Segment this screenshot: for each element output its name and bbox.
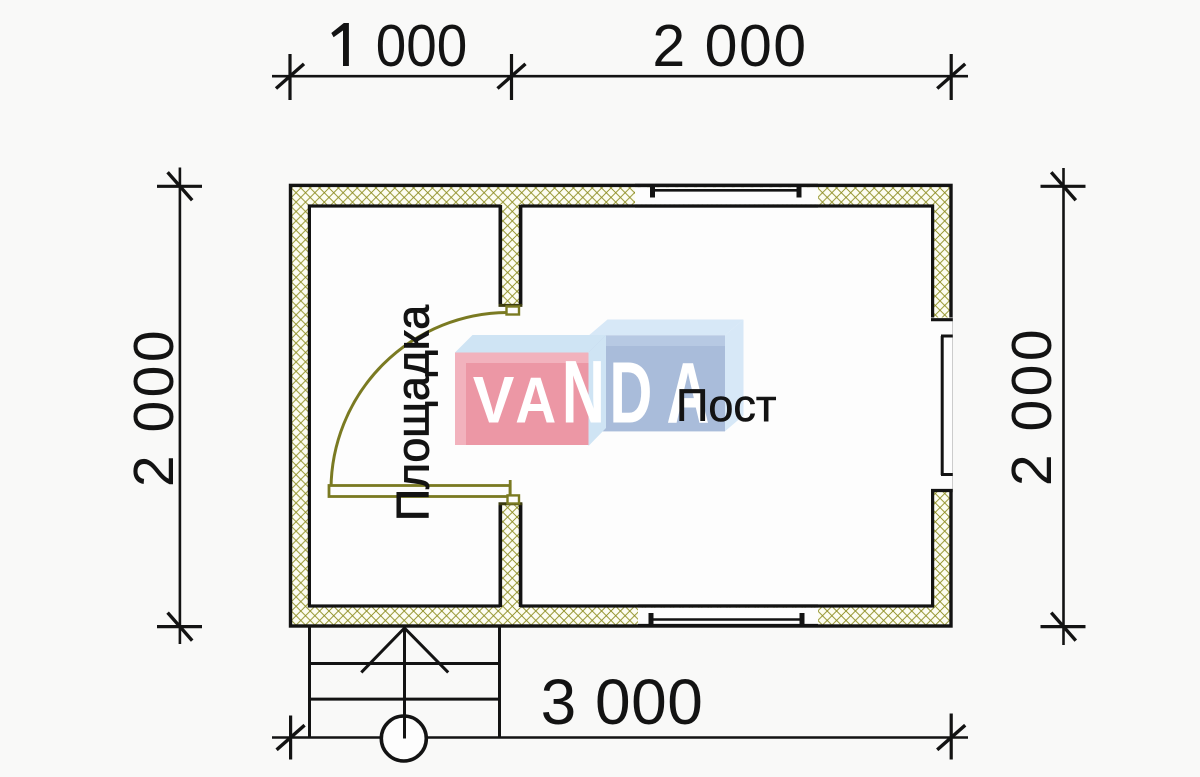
svg-text:2 000: 2 000	[122, 327, 186, 487]
svg-text:3 000: 3 000	[541, 666, 704, 738]
svg-text:N: N	[562, 342, 605, 442]
svg-text:V: V	[473, 363, 515, 437]
svg-text:D: D	[609, 345, 652, 442]
svg-text:Площадка: Площадка	[388, 304, 439, 521]
svg-text:2 000: 2 000	[652, 13, 807, 79]
svg-text:2 000: 2 000	[1000, 326, 1064, 486]
svg-text:A: A	[515, 364, 556, 437]
svg-text:000: 000	[376, 13, 468, 79]
svg-text:Пост: Пост	[676, 380, 776, 431]
